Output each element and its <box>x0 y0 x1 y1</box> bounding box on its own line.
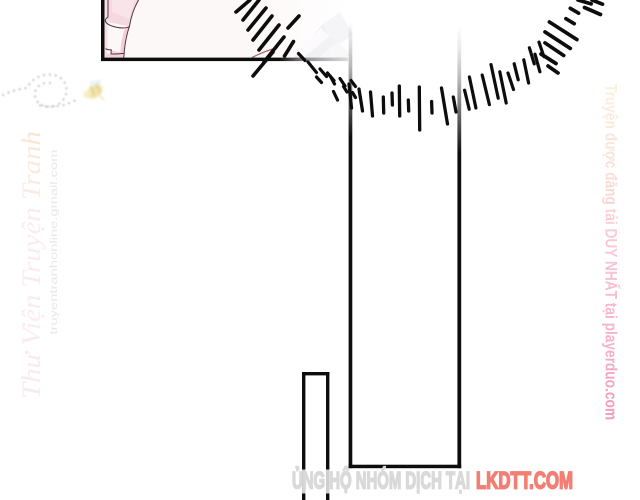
svg-text:truyentranhonline.gmail.com: truyentranhonline.gmail.com <box>49 150 60 335</box>
svg-text:Thư Viện Truyện Tranh: Thư Viện Truyện Tranh <box>17 131 46 399</box>
svg-text:LKDTT.COM: LKDTT.COM <box>476 467 573 494</box>
svg-text:Truyện được đăng tải DUY NHẤT: Truyện được đăng tải DUY NHẤT tại player… <box>602 84 621 420</box>
svg-text:ỦNG HỘ NHÓM DỊCH TẠI: ỦNG HỘ NHÓM DỊCH TẠI <box>292 465 470 494</box>
